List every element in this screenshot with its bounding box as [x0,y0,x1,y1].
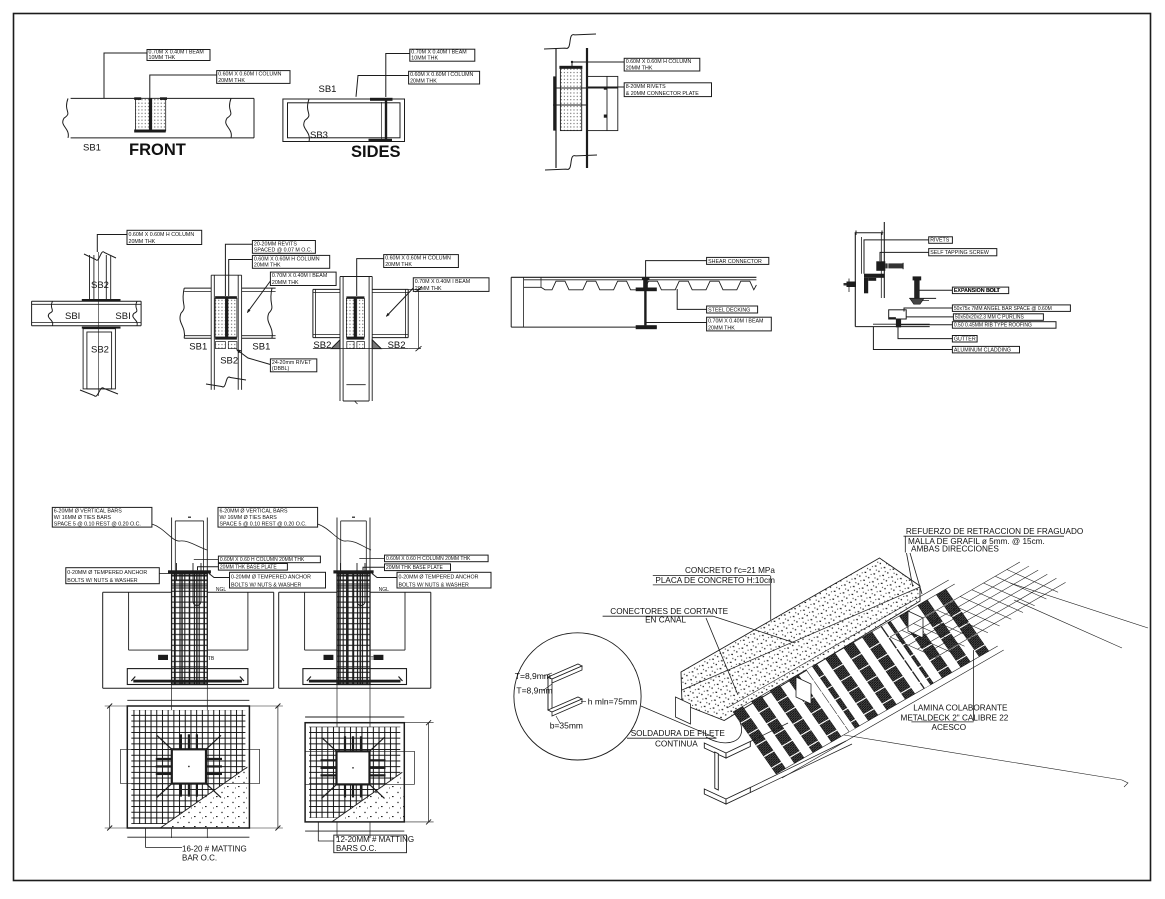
svg-text:SB1: SB1 [189,342,207,353]
svg-text:50x50x20x2.3 MM C PURLINS: 50x50x20x2.3 MM C PURLINS [955,315,1025,321]
svg-text:W/ 16MM Ø TIES BARS: W/ 16MM Ø TIES BARS [54,515,112,521]
svg-text:(DBBL): (DBBL) [272,366,290,372]
svg-text:SHEAR CONNECTOR: SHEAR CONNECTOR [708,259,762,265]
svg-text:SB2: SB2 [388,340,406,351]
svg-text:BOLTS W/ NUTS & WASHER: BOLTS W/ NUTS & WASHER [67,578,138,584]
svg-text:20MM THK: 20MM THK [708,325,735,331]
svg-text:20MM THK: 20MM THK [410,78,437,84]
svg-text:0.60M X 0.60M H COLUMN: 0.60M X 0.60M H COLUMN [626,59,692,65]
svg-text:BARS O.C.: BARS O.C. [336,844,376,853]
svg-text:RIVETS: RIVETS [930,238,950,244]
svg-text:0.60M X 0.60 H COLUMN 20MM TH: 0.60M X 0.60 H COLUMN 20MM THK [220,557,305,563]
svg-text:20MM THK: 20MM THK [626,65,653,71]
svg-text:20MM THK: 20MM THK [254,263,281,269]
svg-text:20MM THK: 20MM THK [129,239,156,245]
svg-text:BOLTS W/ NUTS & WASHER: BOLTS W/ NUTS & WASHER [231,582,302,588]
svg-text:0.60M X 0.60M H COLUMN: 0.60M X 0.60M H COLUMN [129,232,195,238]
svg-text:0.70M X 0.40M I BEAM: 0.70M X 0.40M I BEAM [708,318,763,324]
svg-text:0.60M X 0.60 H COLUMN 20MM TH: 0.60M X 0.60 H COLUMN 20MM THK [386,556,471,562]
svg-text:20MM THK BASE PLATE: 20MM THK BASE PLATE [220,565,277,571]
svg-text:BOLTS W/ NUTS & WASHER: BOLTS W/ NUTS & WASHER [399,582,470,588]
svg-text:SBI: SBI [65,311,80,322]
svg-text:50x75x 7MM ANGEL BAR SPACE @ 0: 50x75x 7MM ANGEL BAR SPACE @ 0.60M [954,306,1052,312]
svg-text:REFUERZO DE RETRACCION DE: REFUERZO DE RETRACCION DE FRAGUADO [906,527,1083,536]
svg-text:0.60M X 0.60M H COLUMN: 0.60M X 0.60M H COLUMN [385,255,451,261]
svg-text:PLACA DE CONCRETO H:10cm: PLACA DE CONCRETO H:10cm [655,576,775,585]
svg-text:SOLDADURA DE FILETE: SOLDADURA DE FILETE [631,729,726,738]
svg-text:SB2: SB2 [91,345,109,356]
svg-text:LAMINA COLABORANTE: LAMINA COLABORANTE [913,704,1008,713]
svg-text:20MM THK: 20MM THK [385,262,412,268]
svg-text:b=35mm: b=35mm [550,721,583,731]
svg-text:0.70M X 0.40M I BEAM: 0.70M X 0.40M I BEAM [272,273,327,279]
svg-text:0-20MM Ø TEMPERED ANCHOR: 0-20MM Ø TEMPERED ANCHOR [399,575,479,581]
svg-text:FRONT: FRONT [129,141,186,159]
svg-text:CONTINUA: CONTINUA [655,740,698,749]
svg-text:0.60M X 0.60M I COLUMN: 0.60M X 0.60M I COLUMN [410,72,473,78]
svg-text:0.70M X 0.40M I BEAM: 0.70M X 0.40M I BEAM [415,279,470,285]
svg-text:GUTTER: GUTTER [954,336,976,342]
svg-text:METALDECK 2" CALIBRE 22: METALDECK 2" CALIBRE 22 [901,713,1009,722]
svg-text:SB3: SB3 [310,130,328,141]
svg-text:SPACE 5 @ 0.10 REST @ 0.20 O.C: SPACE 5 @ 0.10 REST @ 0.20 O.C. [54,522,141,528]
svg-text:20-20MM REVITS: 20-20MM REVITS [254,241,297,247]
svg-text:SB2: SB2 [220,356,238,367]
svg-text:NGL: NGL [379,587,390,593]
svg-text:SB1: SB1 [252,342,270,353]
svg-text:W/ 16MM Ø TIES BARS: W/ 16MM Ø TIES BARS [220,515,278,521]
svg-text:BAR O.C.: BAR O.C. [182,854,217,863]
svg-text:h mln=75mm: h mln=75mm [588,697,637,707]
svg-text:SELF TAPPING SCREW: SELF TAPPING SCREW [930,250,989,256]
svg-text:20MM THK BASE PLATE: 20MM THK BASE PLATE [386,565,443,571]
svg-text:SB2: SB2 [313,340,331,351]
svg-text:6-20MM Ø VERTICAL BARS: 6-20MM Ø VERTICAL BARS [54,508,122,514]
svg-text:SBI: SBI [115,311,130,322]
svg-text:SB2: SB2 [91,280,109,291]
svg-text:NGL: NGL [216,587,227,593]
svg-text:20MM THK: 20MM THK [415,286,442,292]
svg-text:T=8,9mm: T=8,9mm [515,671,551,681]
svg-text:6-20MM Ø VERTICAL BARS: 6-20MM Ø VERTICAL BARS [220,508,288,514]
svg-text:24-20mm RIVET: 24-20mm RIVET [272,360,312,366]
svg-text:20MM THK: 20MM THK [272,280,299,286]
svg-text:& 20MM CONNECTOR PLATE: & 20MM CONNECTOR PLATE [626,91,700,97]
svg-text:16-20 # MATTING: 16-20 # MATTING [182,845,247,854]
svg-text:AMBAS DIRECCIONES: AMBAS DIRECCIONES [911,545,999,554]
svg-text:0-20MM Ø TEMPERED ANCHOR: 0-20MM Ø TEMPERED ANCHOR [67,570,147,576]
svg-text:SPACE 5 @ 0.10 REST @ 0.20 O.C: SPACE 5 @ 0.10 REST @ 0.20 O.C. [220,522,307,528]
svg-text:EXPANSION BOLT: EXPANSION BOLT [954,288,1001,294]
svg-text:10MM THK: 10MM THK [411,56,438,62]
svg-text:20MM THK: 20MM THK [218,78,245,84]
svg-text:TB: TB [208,656,215,662]
svg-text:CONCRETO f'c=21 MPa: CONCRETO f'c=21 MPa [685,566,775,575]
svg-text:0-20MM Ø TEMPERED ANCHOR: 0-20MM Ø TEMPERED ANCHOR [231,575,311,581]
svg-text:SB1: SB1 [83,143,101,154]
svg-text:10MM THK: 10MM THK [149,55,176,61]
svg-text:EN CANAL: EN CANAL [645,616,686,625]
svg-text:0.60M X 0.60M I COLUMN: 0.60M X 0.60M I COLUMN [218,71,281,77]
svg-text:SIDES: SIDES [351,143,401,161]
svg-text:ACESCO: ACESCO [932,723,967,732]
svg-text:ALUMINUM CLADDING: ALUMINUM CLADDING [954,347,1011,353]
svg-text:T=8,9mm: T=8,9mm [516,686,552,696]
svg-text:12-20MM # MATTING: 12-20MM # MATTING [336,835,414,844]
svg-text:8-20MM RIVETS: 8-20MM RIVETS [626,84,666,90]
svg-text:SPACED @ 0.07 M O.C.: SPACED @ 0.07 M O.C. [254,248,312,254]
svg-text:0.50 0.45MM RIB TYPE ROOFING: 0.50 0.45MM RIB TYPE ROOFING [954,323,1032,329]
svg-text:STEEL DECKING: STEEL DECKING [708,307,750,313]
svg-text:0.60M X 0.60M H COLUMN: 0.60M X 0.60M H COLUMN [254,256,320,262]
svg-text:SB1: SB1 [319,84,337,95]
